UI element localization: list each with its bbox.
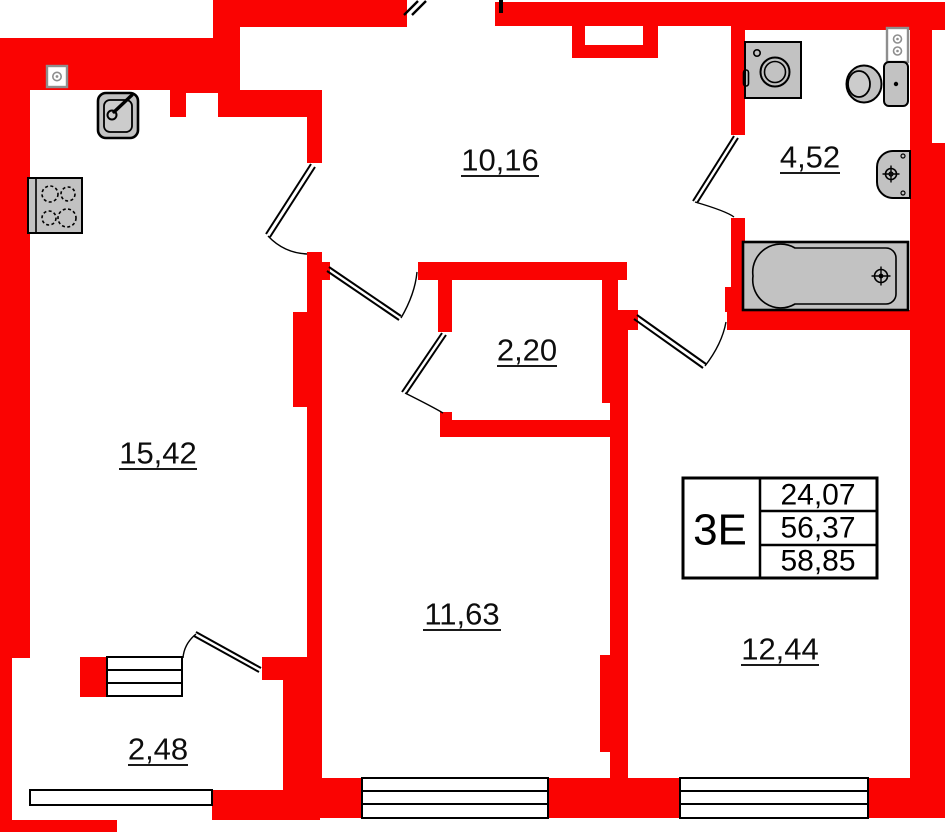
wall-balcony-bottom-block	[212, 790, 320, 820]
wall-top-block-connector	[213, 0, 240, 90]
apartment-type-label: 3Е	[693, 506, 747, 555]
floor-plan: 10,16 4,52 2,20 15,42 11,63 12,44 2,48 3…	[0, 0, 945, 832]
wall-right-lower	[910, 143, 945, 778]
wall-niche-kitchen	[186, 93, 218, 117]
living-area-value: 24,07	[780, 479, 855, 512]
room-label-kitchen: 15,42	[119, 436, 197, 471]
wall-divider-bump	[600, 655, 612, 752]
apartment-info-table: 3Е 24,07 56,37 58,85	[683, 478, 877, 578]
wall-break-icon	[404, 1, 426, 15]
wall-top-left-band	[0, 38, 240, 90]
socket-double-icon	[887, 28, 908, 62]
floor-plan-canvas: 10,16 4,52 2,20 15,42 11,63 12,44 2,48 3…	[0, 0, 945, 832]
wall-left-upper	[0, 38, 30, 658]
balcony-steps	[107, 657, 182, 696]
wall-kitchen-hall-top	[307, 117, 322, 163]
wall-kitchen-bump	[293, 312, 322, 407]
door-hall-to-room-right	[634, 315, 726, 368]
wall-kitchen-hall-mid	[307, 252, 322, 312]
bathtub-icon	[743, 242, 908, 310]
door-hall-to-room-middle	[327, 267, 417, 320]
room-label-hall: 10,16	[461, 143, 539, 178]
wall-rooms-divider	[610, 330, 628, 778]
doors	[183, 136, 738, 672]
room-label-balcony: 2,48	[128, 732, 188, 767]
room-label-bathroom: 4,52	[780, 140, 840, 175]
wall-closet-left-top	[438, 262, 452, 332]
wall-bottom-left-stub	[0, 820, 117, 832]
wall-niche-top	[585, 26, 643, 45]
toilet-icon	[847, 62, 909, 106]
wall-balcony-stair-chunk	[80, 657, 107, 697]
washing-machine-icon	[744, 42, 802, 98]
wall-edge-tick	[499, 0, 503, 13]
balcony-window	[30, 790, 212, 805]
wall-bottom-middle-chunk	[548, 778, 680, 818]
room-label-room-right: 12,44	[741, 632, 819, 667]
door-balcony	[183, 632, 261, 672]
room-label-room-middle: 11,63	[424, 597, 499, 632]
door-kitchen	[266, 164, 315, 254]
wall-balcony-door-bottom	[283, 680, 310, 697]
total-area-value: 58,85	[780, 545, 855, 578]
wall-balcony-door-top	[262, 657, 310, 680]
door-closet	[402, 333, 446, 413]
window-room-right	[680, 778, 868, 818]
bathroom-sink-icon	[877, 151, 910, 198]
wall-right-upper	[910, 23, 932, 143]
wall-bottom-right-corner	[868, 778, 945, 818]
kitchen-sink-icon	[98, 93, 138, 138]
window-room-middle	[362, 778, 548, 818]
socket-icon	[47, 66, 67, 87]
wall-hall-room-stub	[307, 262, 330, 280]
wall-balcony-right	[283, 697, 310, 790]
wall-left-lower	[0, 658, 12, 832]
door-bathroom	[693, 136, 738, 217]
wall-top-block	[213, 0, 407, 27]
walls	[0, 0, 945, 832]
stove-icon	[28, 178, 82, 233]
apartment-area-value: 56,37	[780, 512, 855, 545]
wall-closet-bottom	[440, 420, 618, 437]
room-label-closet: 2,20	[497, 333, 557, 368]
